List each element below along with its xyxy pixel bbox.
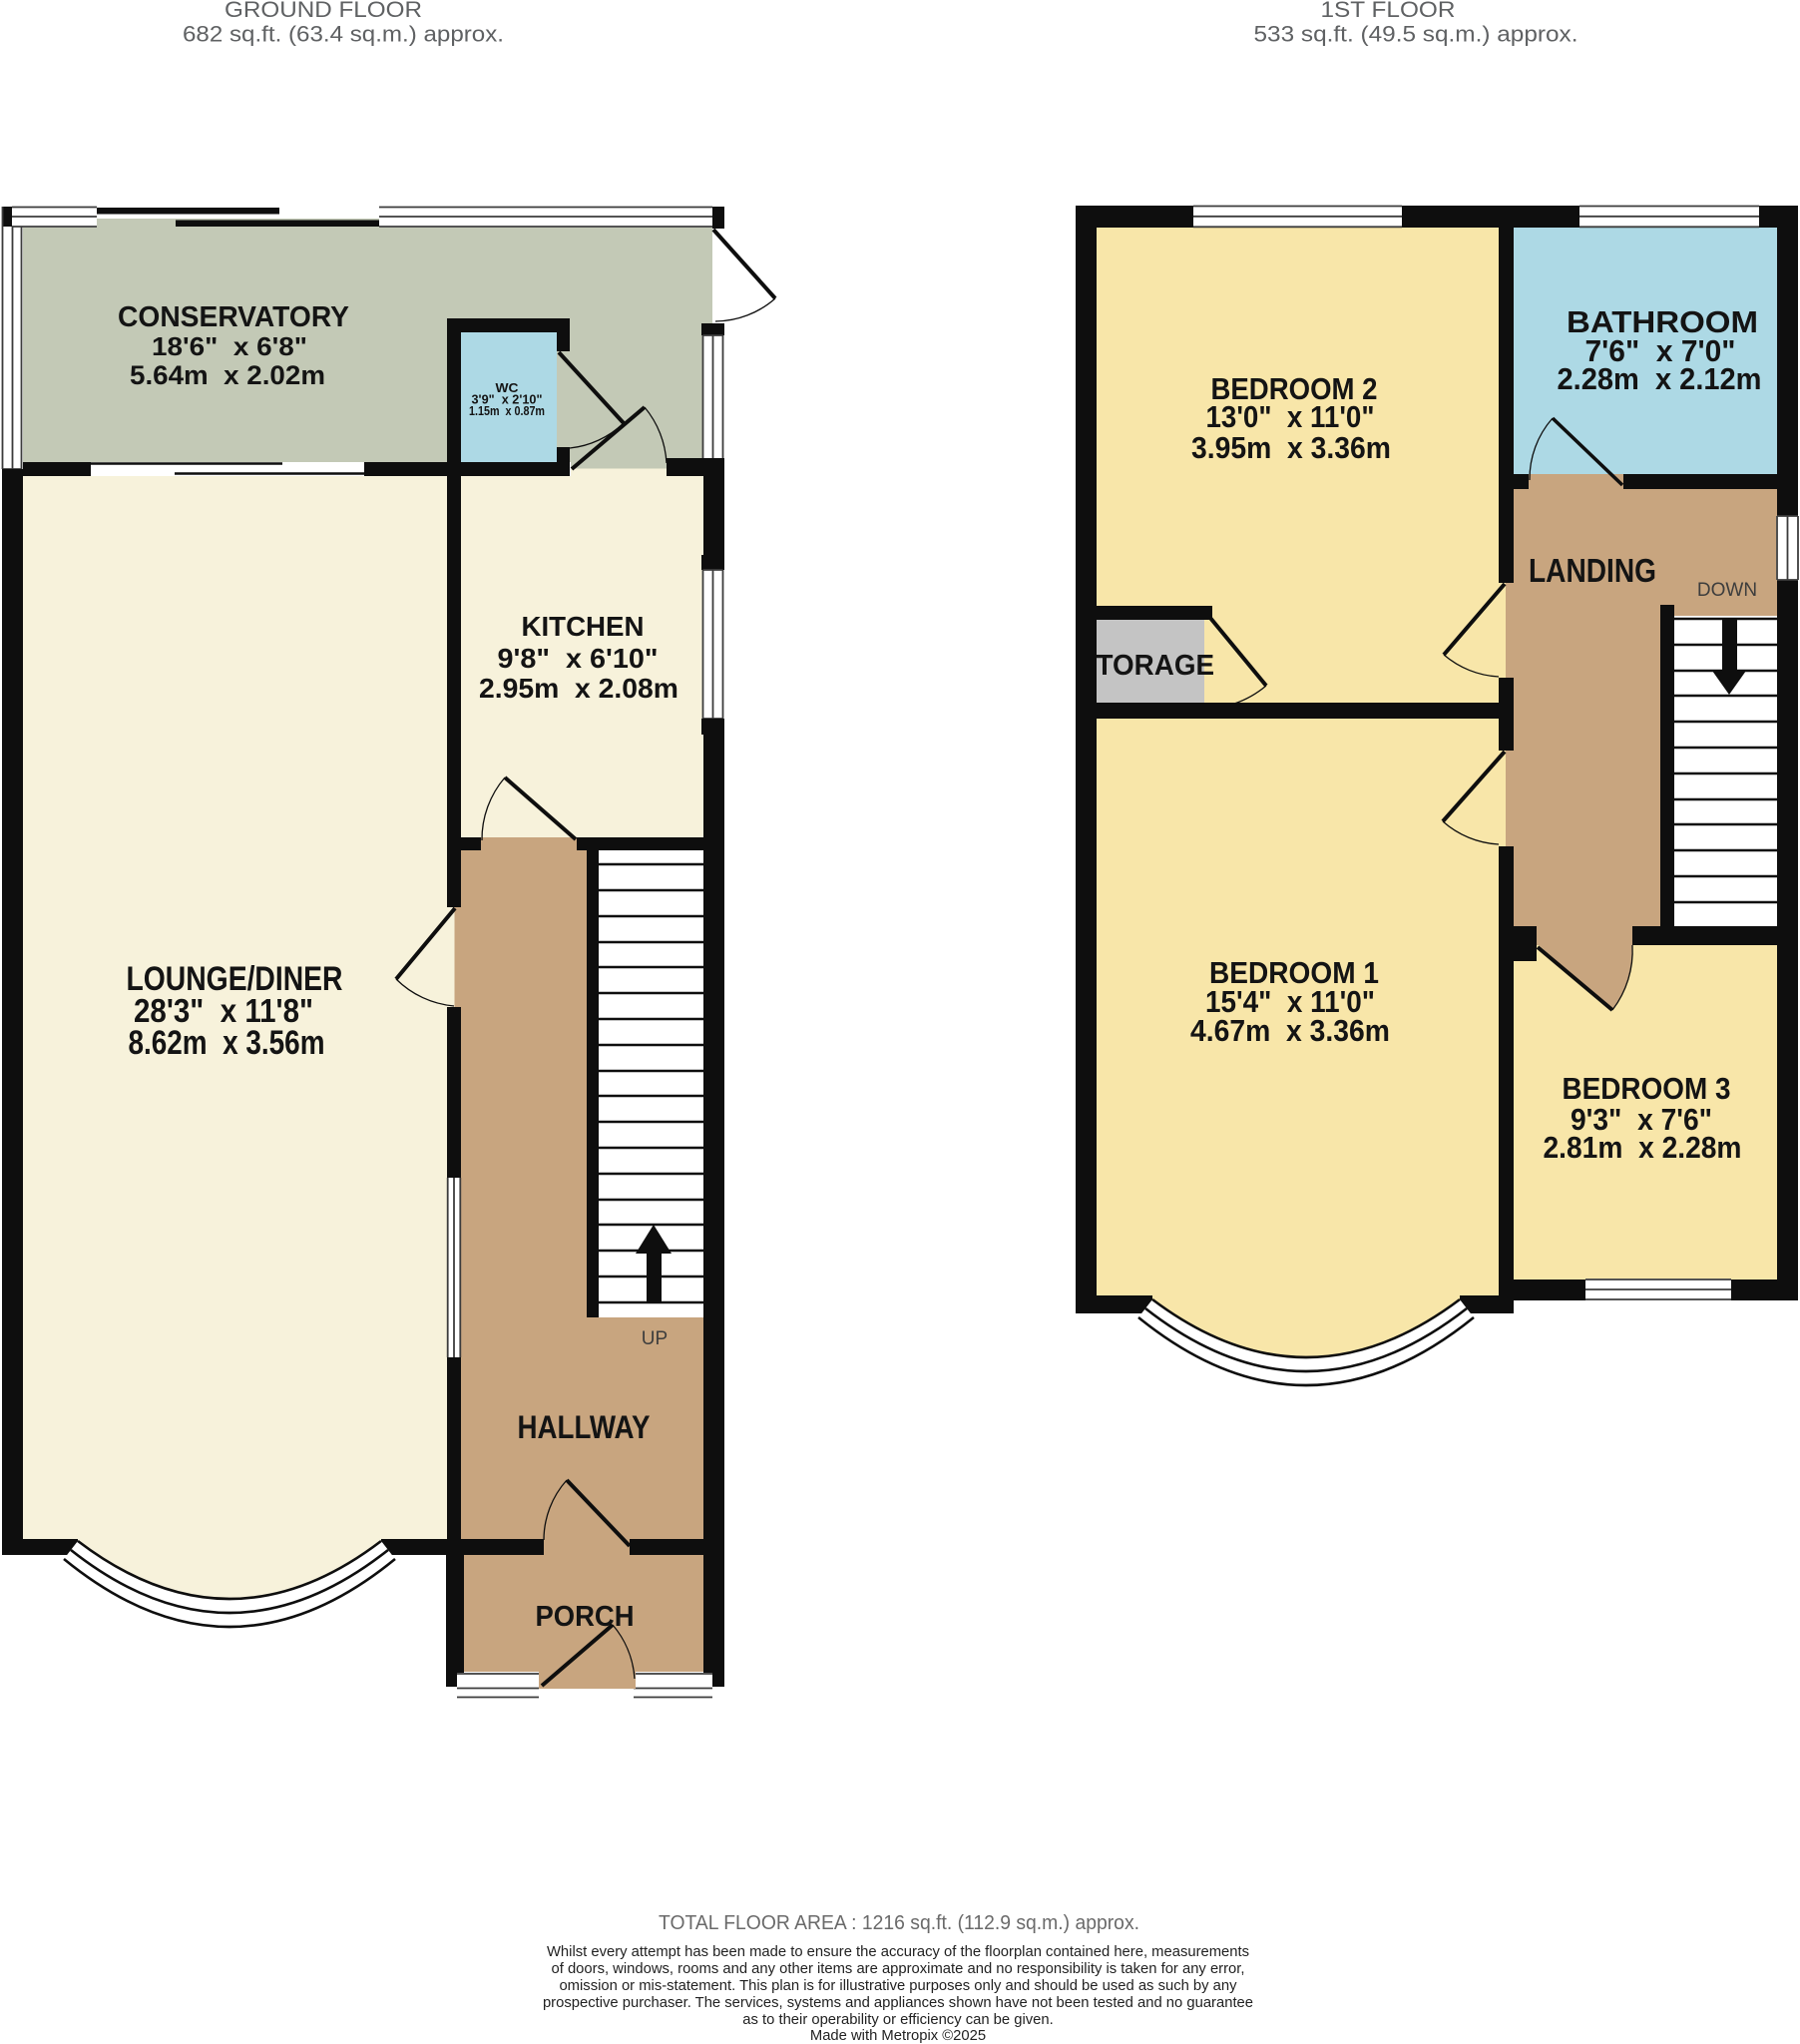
svg-text:8.62m x 3.56m: 8.62m x 3.56m — [129, 1024, 325, 1062]
svg-text:Made with Metropix ©2025: Made with Metropix ©2025 — [810, 2028, 986, 2044]
svg-text:533 sq.ft. (49.5 sq.m.) approx: 533 sq.ft. (49.5 sq.m.) approx. — [1254, 22, 1578, 47]
svg-text:2.95m x 2.08m: 2.95m x 2.08m — [479, 673, 678, 704]
svg-text:3.95m x 3.36m: 3.95m x 3.36m — [1191, 430, 1391, 465]
svg-text:1.15m x 0.87m: 1.15m x 0.87m — [469, 403, 545, 418]
svg-text:4.67m x 3.36m: 4.67m x 3.36m — [1190, 1013, 1390, 1048]
svg-text:13'0" x 11'0": 13'0" x 11'0" — [1206, 399, 1375, 434]
svg-text:2.28m x 2.12m: 2.28m x 2.12m — [1558, 361, 1762, 396]
svg-text:2.81m x 2.28m: 2.81m x 2.28m — [1544, 1130, 1742, 1165]
svg-text:STORAGE: STORAGE — [1078, 650, 1214, 682]
svg-text:UP: UP — [642, 1328, 668, 1349]
svg-text:LANDING: LANDING — [1529, 552, 1656, 589]
svg-text:9'8" x 6'10": 9'8" x 6'10" — [498, 643, 659, 674]
svg-text:of doors, windows, rooms and a: of doors, windows, rooms and any other i… — [552, 1961, 1245, 1977]
svg-text:18'6" x 6'8": 18'6" x 6'8" — [152, 331, 307, 361]
svg-text:PORCH: PORCH — [536, 1601, 635, 1633]
svg-text:CONSERVATORY: CONSERVATORY — [118, 301, 349, 333]
svg-text:as to their operability or eff: as to their operability or efficiency ca… — [742, 2012, 1053, 2028]
svg-text:Whilst every attempt has been: Whilst every attempt has been made to en… — [547, 1944, 1249, 1960]
svg-text:HALLWAY: HALLWAY — [518, 1409, 651, 1445]
svg-text:omission or mis-statement. Thi: omission or mis-statement. This plan is … — [559, 1978, 1237, 1994]
svg-text:TOTAL FLOOR AREA : 1216 sq.ft.: TOTAL FLOOR AREA : 1216 sq.ft. (112.9 sq… — [659, 1911, 1139, 1934]
svg-text:5.64m x 2.02m: 5.64m x 2.02m — [130, 360, 325, 390]
svg-text:KITCHEN: KITCHEN — [522, 611, 645, 642]
svg-text:GROUND FLOOR: GROUND FLOOR — [225, 0, 422, 22]
svg-text:1ST FLOOR: 1ST FLOOR — [1321, 0, 1456, 22]
svg-text:682 sq.ft. (63.4 sq.m.) approx: 682 sq.ft. (63.4 sq.m.) approx. — [183, 22, 504, 47]
svg-text:prospective purchaser. The ser: prospective purchaser. The services, sys… — [543, 1995, 1253, 2011]
svg-text:BEDROOM 3: BEDROOM 3 — [1563, 1071, 1731, 1106]
svg-text:DOWN: DOWN — [1697, 580, 1757, 601]
